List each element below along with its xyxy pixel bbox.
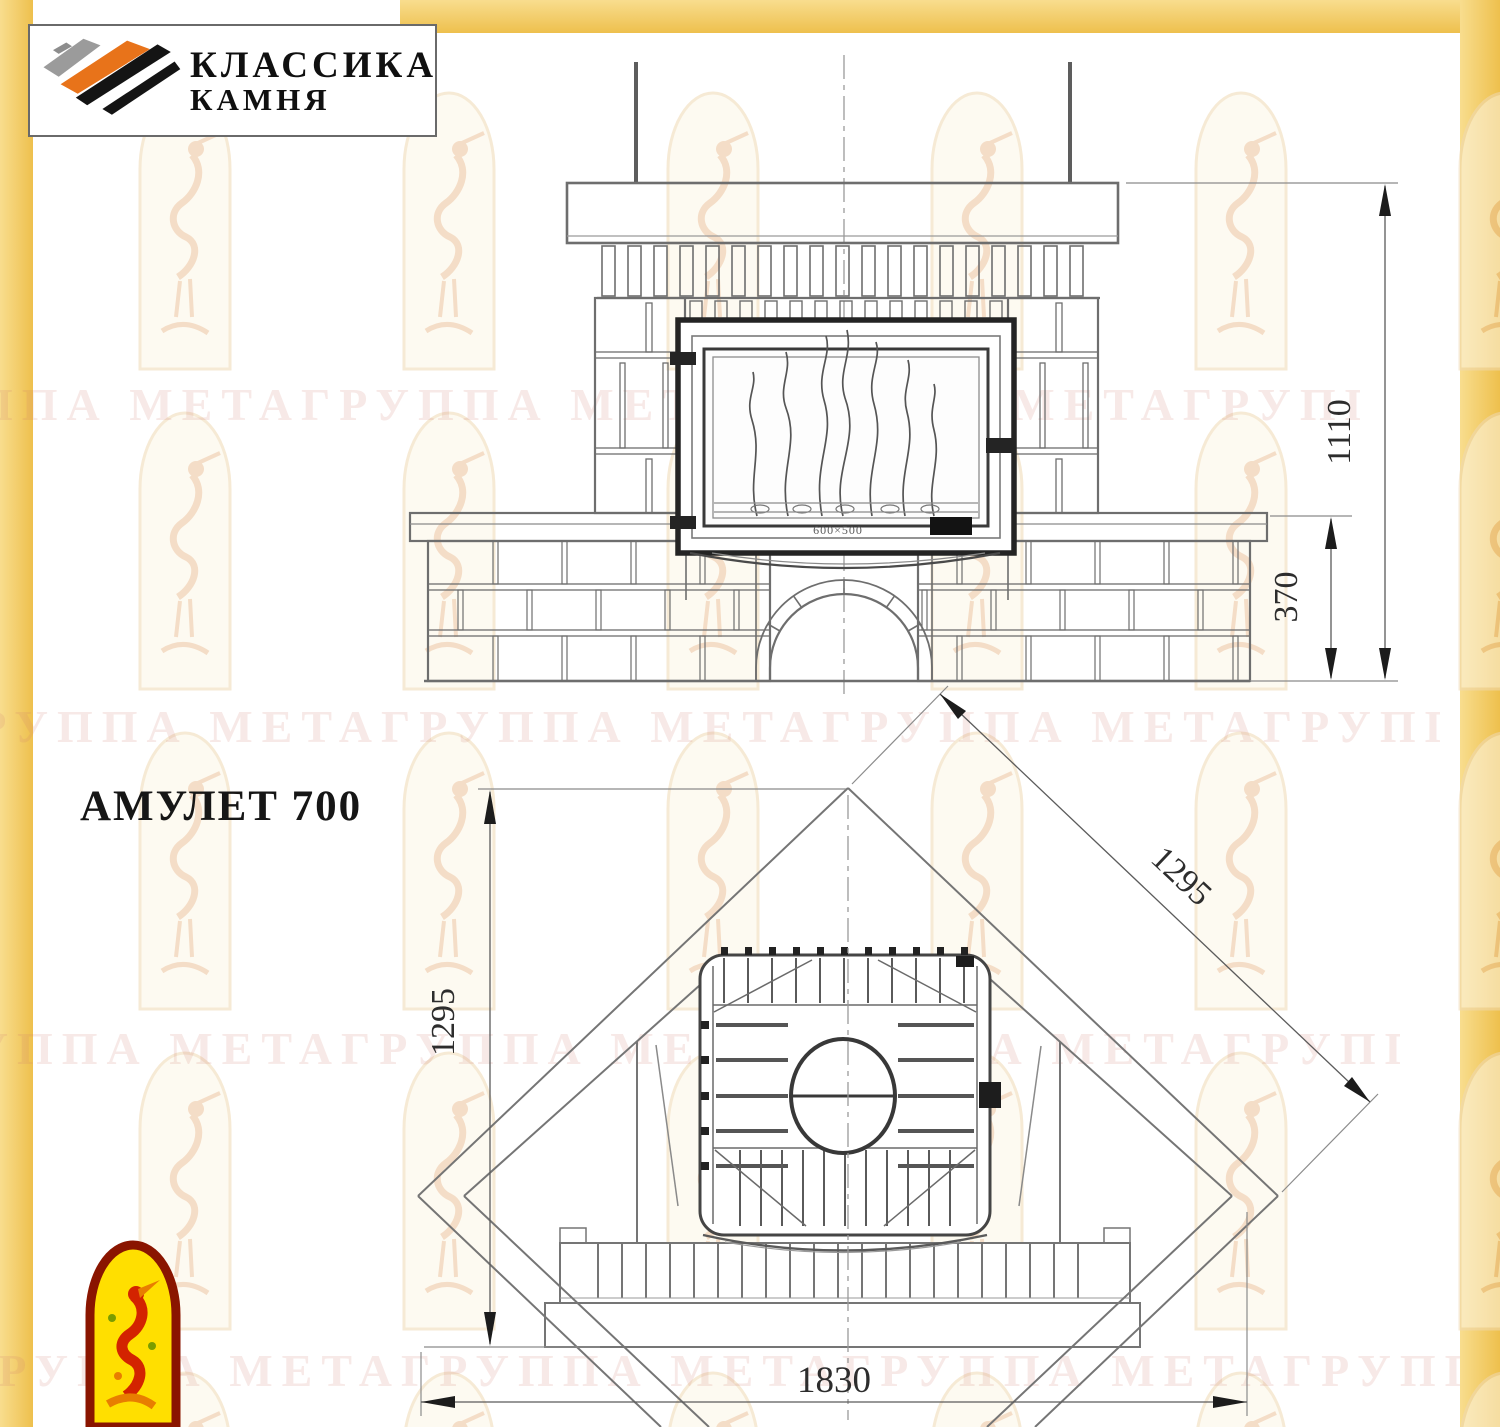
- dimension-370: 370: [1268, 516, 1352, 680]
- firebox-door: 600×500: [670, 320, 1014, 568]
- ash-lip: [930, 517, 972, 535]
- door-handle: [986, 438, 1014, 453]
- front-view: 600×500 1110 370: [410, 55, 1398, 700]
- plan-view: 1295 1295 1830: [418, 686, 1378, 1427]
- svg-text:370: 370: [1268, 572, 1305, 623]
- page: { "title": "АМУЛЕТ 700", "logo": { "line…: [0, 0, 1500, 1427]
- hinge-top: [670, 352, 696, 365]
- handle-plan: [979, 1082, 1001, 1108]
- hearth-platform: [545, 1228, 1140, 1347]
- svg-text:1295: 1295: [425, 988, 462, 1056]
- svg-text:1295: 1295: [1144, 840, 1219, 914]
- svg-text:1830: 1830: [797, 1360, 871, 1401]
- firebox-marking: 600×500: [813, 523, 863, 537]
- mantel-shelf: [567, 183, 1118, 243]
- bench-brickwork: [428, 541, 1250, 681]
- dimension-1110: 1110: [1126, 183, 1398, 681]
- dentil-course: [597, 246, 1100, 298]
- hinge-bottom: [670, 516, 696, 529]
- svg-text:1110: 1110: [1321, 399, 1358, 464]
- stork-logo: [90, 1245, 176, 1427]
- technical-drawing: 600×500 1110 370: [0, 0, 1500, 1427]
- firebox-plan: [700, 947, 1001, 1253]
